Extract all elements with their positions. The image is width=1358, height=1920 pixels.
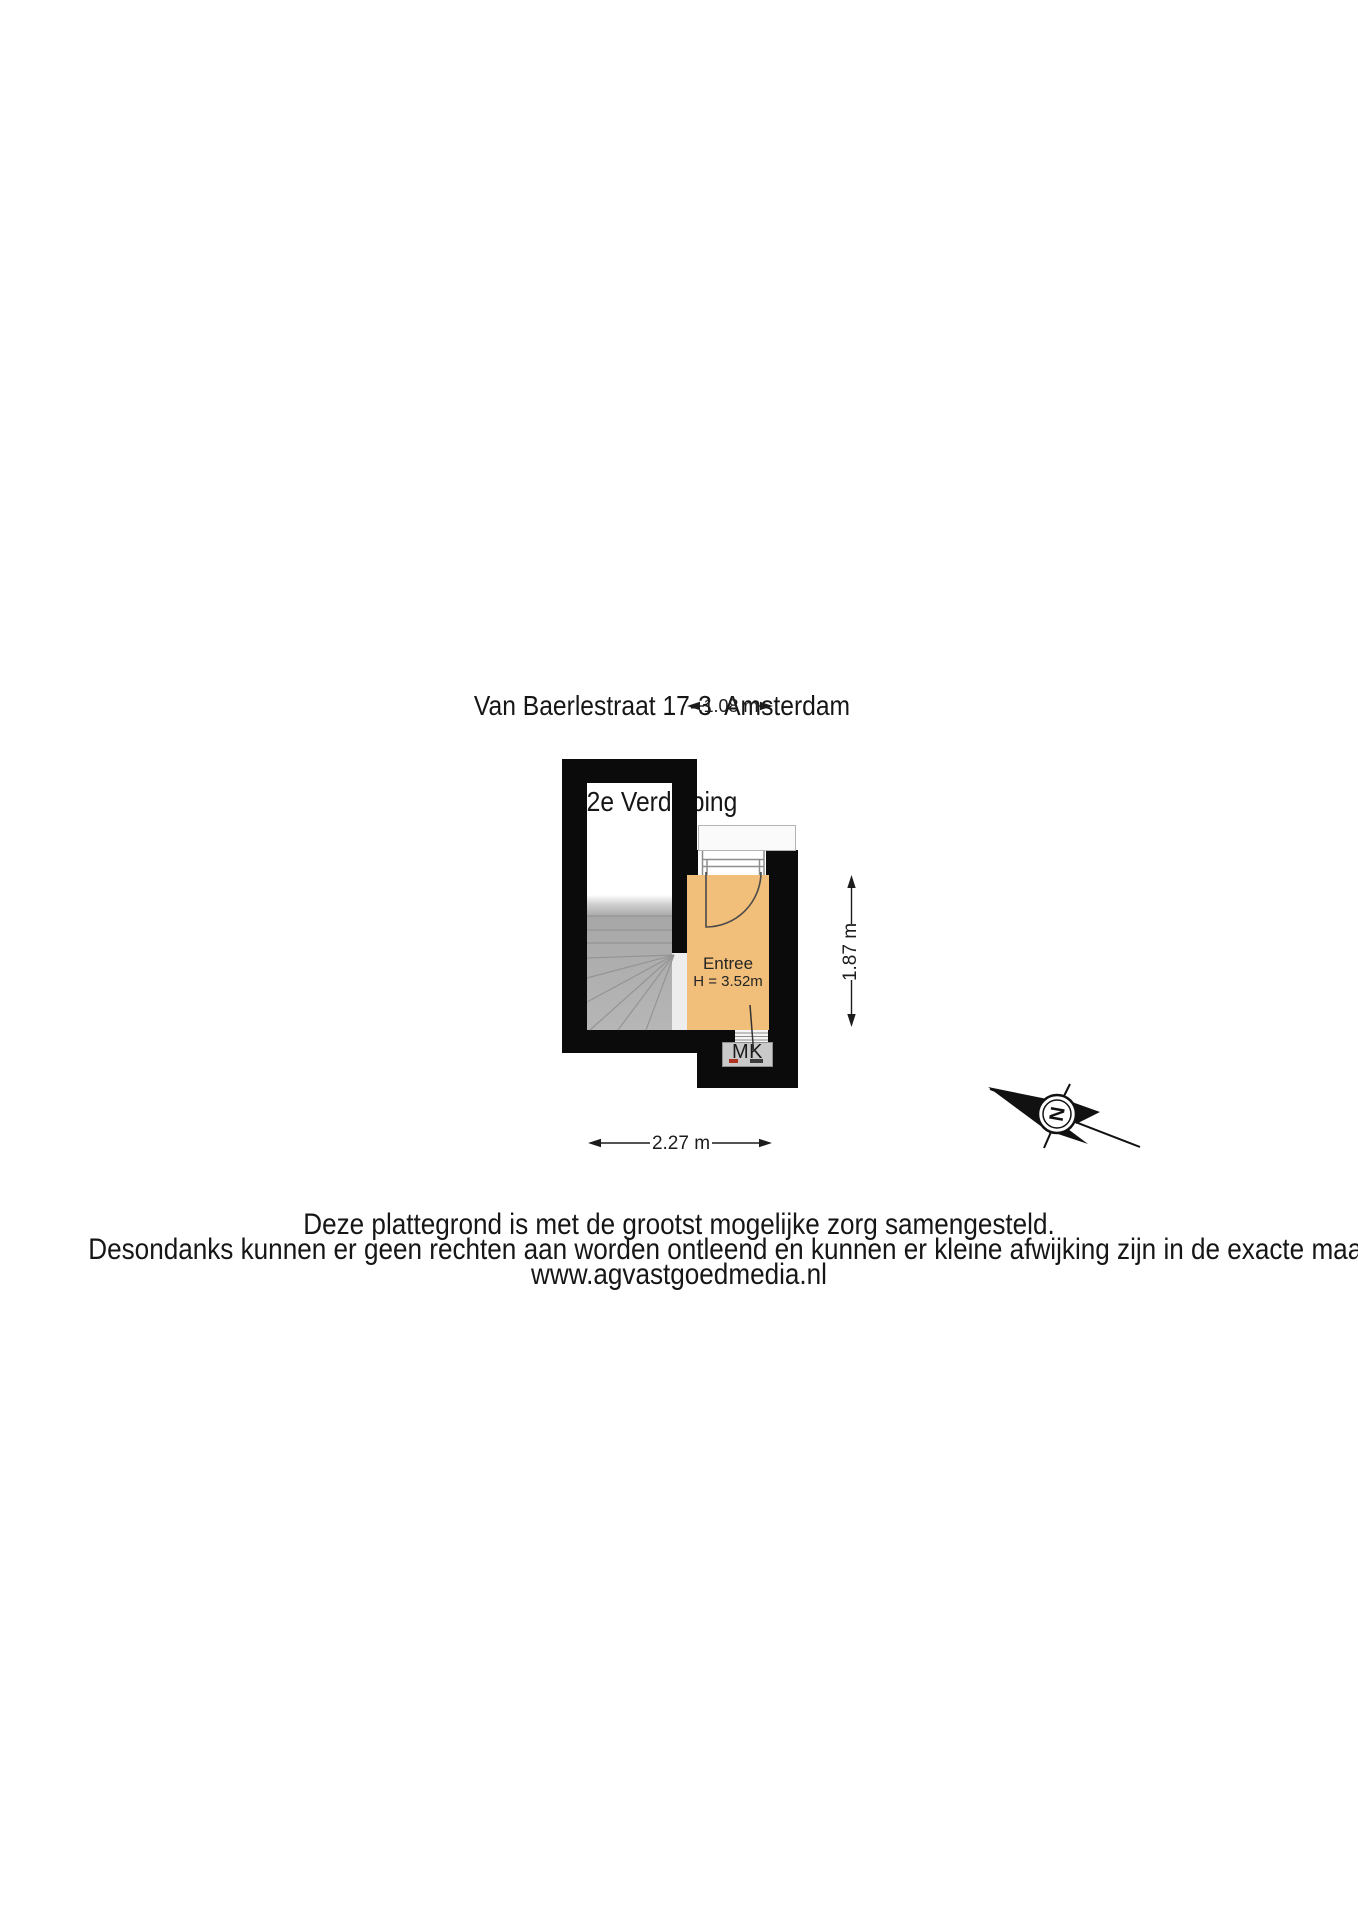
title-address: Van Baerlestraat 17-3 Amsterdam (310, 690, 1014, 722)
floorplan-page: Van Baerlestraat 17-3 Amsterdam 2e Verdi… (0, 0, 1358, 1920)
north-arrow-icon: N (988, 1084, 1140, 1148)
entry-door-frame (698, 851, 766, 875)
dimension-bottom-label: 2.27 m (641, 1133, 721, 1155)
passage-opening (672, 953, 687, 1030)
page-title: Van Baerlestraat 17-3 Amsterdam 2e Verdi… (310, 626, 1014, 882)
dimension-top-label: 1.08 m (691, 696, 771, 717)
compass-letter: N (1044, 1105, 1068, 1123)
title-floor: 2e Verdieping (310, 786, 1014, 818)
room-name: Entree (687, 954, 769, 973)
dimension-right-label: 1.87 m (841, 912, 861, 992)
wall-stairwell-left (562, 759, 587, 1053)
entree-room-label: Entree H = 3.52m (687, 954, 769, 990)
entree-room (687, 875, 769, 1030)
entry-platform (698, 825, 796, 851)
disclaimer: Deze plattegrond is met de grootst mogel… (88, 1212, 1269, 1287)
meter-dark-indicator (750, 1059, 763, 1063)
staircase-area (587, 895, 672, 1030)
meter-red-indicator (729, 1059, 738, 1063)
wall-entree-left (672, 875, 687, 953)
meter-cabinet: MK (722, 1042, 773, 1067)
wall-stairwell-bottom (562, 1030, 697, 1053)
room-ceiling-height: H = 3.52m (687, 973, 769, 990)
